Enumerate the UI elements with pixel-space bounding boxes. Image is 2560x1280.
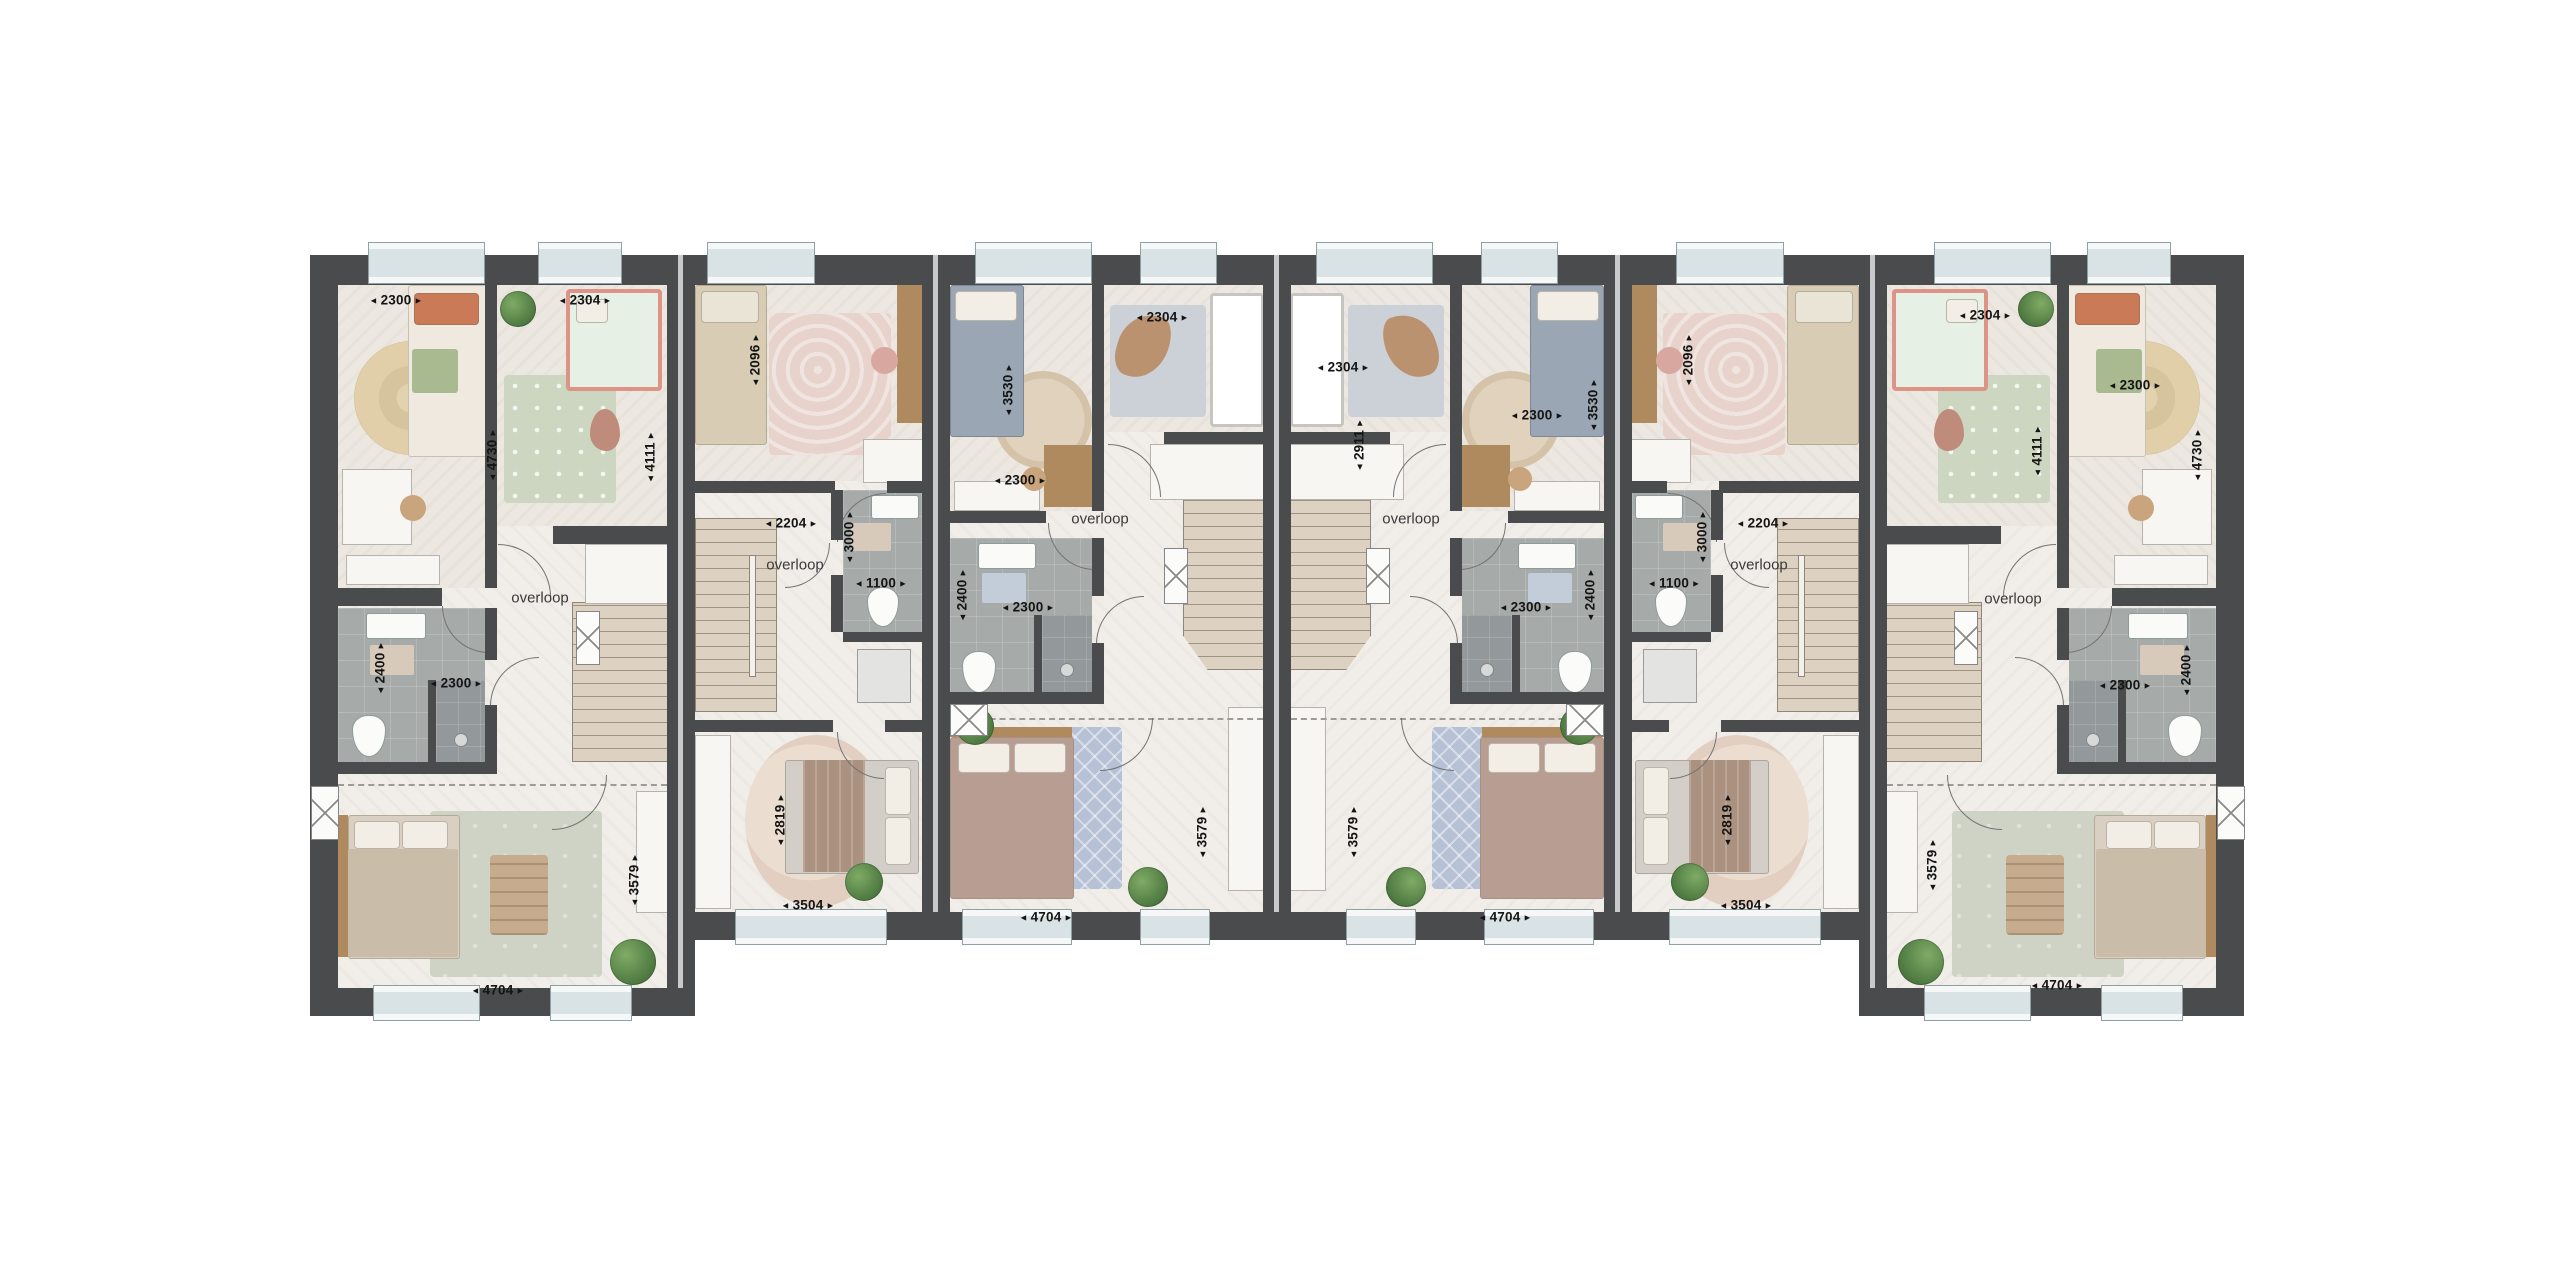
- room-label-landing: overloop: [1730, 557, 1788, 574]
- party-wall-3-4: [1263, 255, 1291, 940]
- room-label-landing: overloop: [1382, 511, 1440, 528]
- dimension-label: 4111: [2030, 425, 2044, 478]
- dimension-label: 4730: [485, 428, 499, 482]
- unit-1-labels: 23002304473041112400230035794704overloop: [338, 255, 667, 1016]
- dimension-label: 2400: [1583, 568, 1597, 622]
- dimension-label: 3000: [1695, 510, 1709, 564]
- dimension-label: 3504: [1719, 898, 1773, 912]
- dimension-label: 2204: [1736, 516, 1790, 530]
- party-wall-2-3: [922, 255, 950, 940]
- dimension-label: 3504: [781, 898, 835, 912]
- dimension-label: 2300: [2098, 678, 2152, 692]
- dimension-label: 2819: [773, 793, 787, 847]
- room-label-landing: overloop: [766, 557, 824, 574]
- unit-5-labels: 209622043000110028193504overloop: [1632, 255, 1859, 940]
- dimension-label: 2819: [1720, 793, 1734, 847]
- dimension-label: 3530: [1586, 378, 1600, 432]
- dimension-label: 2304: [558, 293, 612, 307]
- dimension-label: 3579: [1195, 805, 1209, 859]
- party-wall-5-6: [1859, 255, 1887, 1016]
- room-label-landing: overloop: [1984, 591, 2042, 608]
- dimension-label: 3579: [627, 853, 641, 907]
- outer-wall-right: [2216, 255, 2244, 1016]
- dimension-label: 4730: [2190, 428, 2204, 482]
- dimension-label: 2400: [2179, 643, 2193, 697]
- dimension-label: 4111: [643, 431, 657, 484]
- unit-4-labels: 23042911230035302400230035794704overloop: [1291, 255, 1604, 940]
- dimension-label: 2300: [2108, 378, 2162, 392]
- dimension-label: 2204: [764, 516, 818, 530]
- side-window-left: [311, 786, 339, 840]
- floor-plan-page: { "plan": { "type": "floor-plan", "landi…: [0, 0, 2560, 1280]
- dimension-label: 2304: [1958, 308, 2012, 322]
- dimension-label: 4704: [1019, 910, 1073, 924]
- dimension-label: 3530: [1001, 363, 1015, 417]
- unit-6-labels: 23044111230047302400230035794704overloop: [1887, 255, 2216, 1016]
- outer-wall-left: [310, 255, 338, 1016]
- dimension-label: 2096: [748, 333, 762, 387]
- dimension-label: 3000: [842, 510, 856, 564]
- unit-3-labels: 3530230023042400230035794704overloop: [950, 255, 1263, 940]
- dimension-label: 1100: [1647, 576, 1700, 590]
- dimension-label: 2300: [1499, 600, 1553, 614]
- dimension-label: 2300: [993, 473, 1047, 487]
- dimension-label: 2300: [1510, 408, 1564, 422]
- dimension-label: 2400: [955, 568, 969, 622]
- dimension-label: 2300: [429, 676, 483, 690]
- dimension-label: 3579: [1346, 805, 1360, 859]
- dimension-label: 4704: [471, 983, 525, 997]
- dimension-label: 4704: [1478, 910, 1532, 924]
- room-label-landing: overloop: [511, 590, 569, 607]
- room-label-landing: overloop: [1071, 511, 1129, 528]
- party-wall-4-5: [1604, 255, 1632, 940]
- dimension-label: 2304: [1135, 310, 1189, 324]
- dimension-label: 4704: [2030, 978, 2084, 992]
- dimension-label: 2400: [373, 641, 387, 695]
- dimension-label: 2911: [1352, 418, 1366, 471]
- dimension-label: 2096: [1681, 333, 1695, 387]
- dimension-label: 2300: [369, 293, 423, 307]
- dimension-label: 3579: [1925, 838, 1939, 892]
- dimension-label: 2304: [1316, 360, 1370, 374]
- party-wall-1-2: [667, 255, 695, 1016]
- unit-2-labels: 209622043000110028193504overloop: [695, 255, 922, 940]
- dimension-label: 1100: [854, 576, 907, 590]
- dimension-label: 2300: [1001, 600, 1055, 614]
- side-window-right: [2217, 786, 2245, 840]
